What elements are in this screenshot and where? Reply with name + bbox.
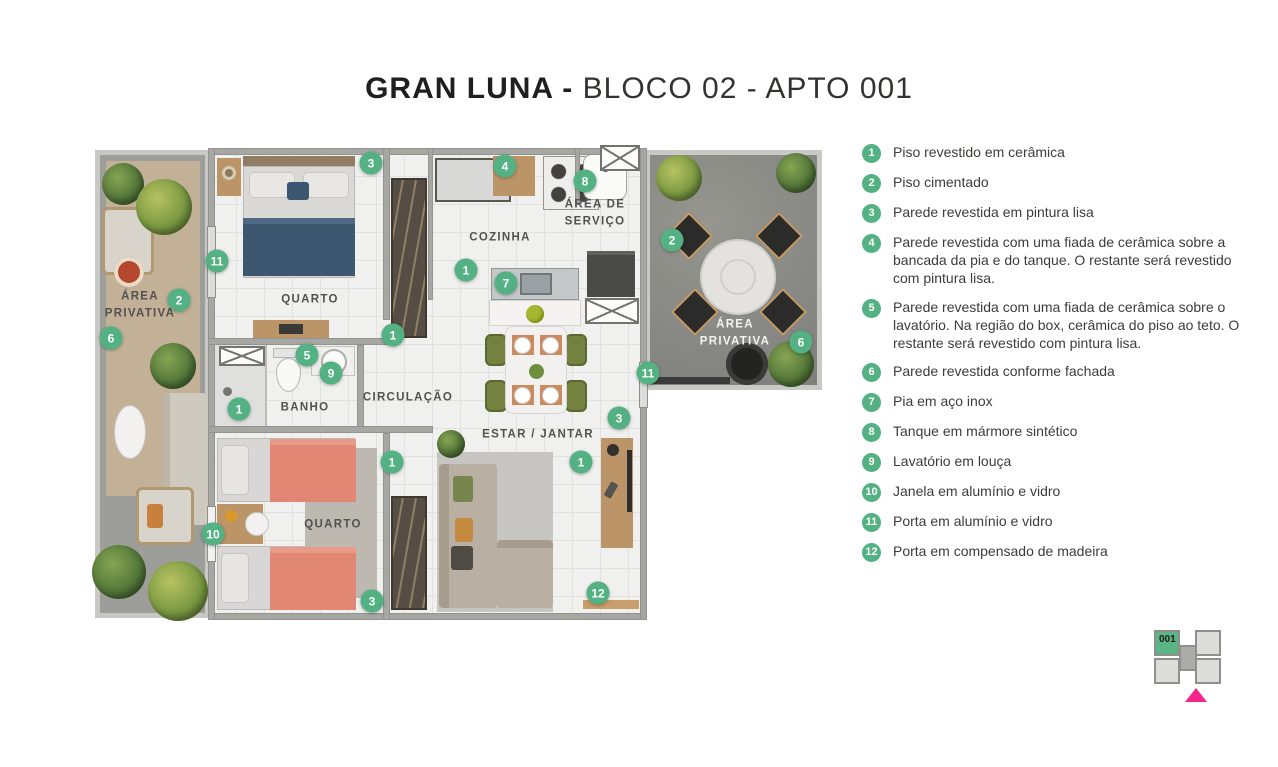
tv-desk bbox=[601, 438, 633, 548]
right-private-area bbox=[645, 150, 822, 390]
plan-marker-2: 2 bbox=[661, 229, 684, 252]
plan-marker-2: 2 bbox=[168, 289, 191, 312]
keyplan: 001 bbox=[1154, 630, 1222, 704]
dresser bbox=[253, 320, 329, 338]
room-label: ÁREA PRIVATIVA bbox=[700, 316, 770, 349]
title-brand: GRAN LUNA - bbox=[365, 72, 573, 105]
legend-item-7: 7Pia em aço inox bbox=[862, 392, 1244, 412]
armchair bbox=[136, 487, 194, 545]
legend-text: Janela em alumínio e vidro bbox=[893, 482, 1060, 500]
wall bbox=[428, 148, 433, 300]
dining-table bbox=[505, 326, 567, 414]
plan-marker-7: 7 bbox=[495, 272, 518, 295]
lamp bbox=[222, 166, 236, 180]
legend-item-9: 9Lavatório em louça bbox=[862, 452, 1244, 472]
shower-drain bbox=[223, 387, 232, 396]
legend-item-3: 3Parede revestida em pintura lisa bbox=[862, 203, 1244, 223]
plan-marker-6: 6 bbox=[790, 331, 813, 354]
round-table bbox=[702, 241, 774, 313]
washer-space bbox=[585, 298, 639, 324]
plant bbox=[148, 561, 208, 621]
plan-marker-3: 3 bbox=[608, 407, 631, 430]
legend-text: Parede revestida com uma fiada de cerâmi… bbox=[893, 233, 1243, 288]
dining-chair bbox=[565, 334, 587, 366]
legend-text: Porta em alumínio e vidro bbox=[893, 512, 1053, 530]
room-label: ESTAR / JANTAR bbox=[482, 427, 594, 444]
legend-number-badge: 7 bbox=[862, 393, 881, 412]
legend-number-badge: 10 bbox=[862, 483, 881, 502]
sliding-door bbox=[652, 377, 730, 384]
legend-item-11: 11Porta em alumínio e vidro bbox=[862, 512, 1244, 532]
table-ring bbox=[720, 259, 756, 295]
laptop bbox=[279, 324, 303, 334]
window-icon bbox=[600, 145, 640, 171]
double-bed bbox=[243, 156, 355, 278]
salmon-blanket bbox=[270, 439, 356, 502]
single-bed bbox=[217, 546, 355, 610]
salmon-blanket bbox=[270, 547, 356, 610]
plan-marker-1: 1 bbox=[381, 451, 404, 474]
legend-number-badge: 4 bbox=[862, 234, 881, 253]
pillow bbox=[221, 445, 249, 495]
plate bbox=[542, 337, 559, 354]
room-label: QUARTO bbox=[304, 517, 361, 534]
plan-marker-8: 8 bbox=[574, 170, 597, 193]
centerpiece bbox=[529, 364, 544, 379]
plate bbox=[542, 387, 559, 404]
plan-marker-11: 11 bbox=[206, 250, 229, 273]
sofa-pillow bbox=[451, 546, 473, 570]
page-title: GRAN LUNA - BLOCO 02 - APTO 001 bbox=[0, 74, 1278, 104]
plan-marker-1: 1 bbox=[228, 398, 251, 421]
pillow bbox=[303, 172, 349, 198]
plan-marker-9: 9 bbox=[320, 362, 343, 385]
legend-number-badge: 5 bbox=[862, 299, 881, 318]
legend-item-8: 8Tanque em mármore sintético bbox=[862, 422, 1244, 442]
plan-marker-6: 6 bbox=[100, 327, 123, 350]
appliance bbox=[587, 251, 635, 297]
floor-plan: ÁREA PRIVATIVAQUARTOCOZINHAÁREA DE SERVI… bbox=[95, 148, 822, 620]
pillow bbox=[221, 553, 249, 603]
left-private-area bbox=[95, 150, 210, 618]
dining-chair bbox=[565, 380, 587, 412]
food-tray bbox=[114, 257, 144, 287]
keyplan-unit bbox=[1195, 658, 1221, 684]
legend-item-10: 10Janela em alumínio e vidro bbox=[862, 482, 1244, 502]
single-bed bbox=[217, 438, 355, 502]
keyplan-unit bbox=[1195, 630, 1221, 656]
plan-marker-1: 1 bbox=[382, 324, 405, 347]
sink-basin bbox=[520, 273, 552, 295]
legend-text: Parede revestida conforme fachada bbox=[893, 362, 1115, 380]
room-label: BANHO bbox=[281, 400, 330, 417]
speaker bbox=[607, 444, 619, 456]
tv-screen bbox=[627, 450, 632, 512]
plan-marker-10: 10 bbox=[202, 523, 225, 546]
legend-number-badge: 11 bbox=[862, 513, 881, 532]
desk-chair bbox=[245, 512, 269, 536]
remote bbox=[604, 481, 619, 499]
plant bbox=[136, 179, 192, 235]
legend-number-badge: 9 bbox=[862, 453, 881, 472]
plan-marker-4: 4 bbox=[494, 155, 517, 178]
title-unit: BLOCO 02 - APTO 001 bbox=[583, 72, 913, 105]
dining-chair bbox=[485, 380, 507, 412]
legend-text: Piso cimentado bbox=[893, 173, 989, 191]
plant bbox=[437, 430, 465, 458]
sofa-pillow bbox=[453, 476, 473, 502]
legend-text: Parede revestida com uma fiada de cerâmi… bbox=[893, 298, 1243, 353]
plan-marker-3: 3 bbox=[361, 590, 384, 613]
room-label: COZINHA bbox=[469, 230, 531, 247]
plate bbox=[514, 337, 531, 354]
keyplan-north-arrow bbox=[1185, 688, 1207, 702]
legend-number-badge: 8 bbox=[862, 423, 881, 442]
wall bbox=[357, 345, 364, 430]
wardrobe bbox=[391, 178, 427, 338]
room-label: CIRCULAÇÃO bbox=[363, 390, 453, 407]
orange-pillow bbox=[147, 504, 163, 528]
legend-text: Lavatório em louça bbox=[893, 452, 1011, 470]
chaise bbox=[497, 540, 553, 608]
legend-item-1: 1Piso revestido em cerâmica bbox=[862, 143, 1244, 163]
washer-space bbox=[219, 346, 265, 366]
legend-text: Pia em aço inox bbox=[893, 392, 993, 410]
legend-text: Porta em compensado de madeira bbox=[893, 542, 1108, 560]
fruit-bowl bbox=[526, 305, 544, 323]
plan-marker-1: 1 bbox=[455, 259, 478, 282]
room-label: ÁREA PRIVATIVA bbox=[105, 288, 175, 321]
wall bbox=[208, 613, 647, 620]
legend-number-badge: 6 bbox=[862, 363, 881, 382]
legend-number-badge: 12 bbox=[862, 543, 881, 562]
legend: 1Piso revestido em cerâmica2Piso cimenta… bbox=[862, 143, 1244, 562]
legend-text: Piso revestido em cerâmica bbox=[893, 143, 1065, 161]
plate bbox=[514, 387, 531, 404]
wall bbox=[208, 338, 390, 345]
wardrobe bbox=[391, 496, 427, 610]
sofa-pillow bbox=[455, 518, 473, 542]
legend-item-5: 5Parede revestida com uma fiada de cerâm… bbox=[862, 298, 1244, 353]
navy-blanket bbox=[243, 218, 355, 276]
plant bbox=[656, 155, 702, 201]
plan-marker-1: 1 bbox=[570, 451, 593, 474]
legend-number-badge: 2 bbox=[862, 174, 881, 193]
plant bbox=[150, 343, 196, 389]
desk-lamp bbox=[225, 510, 237, 522]
legend-item-2: 2Piso cimentado bbox=[862, 173, 1244, 193]
sofa bbox=[439, 464, 497, 608]
plant bbox=[92, 545, 146, 599]
legend-text: Tanque em mármore sintético bbox=[893, 422, 1077, 440]
dining-chair bbox=[485, 334, 507, 366]
legend-number-badge: 1 bbox=[862, 144, 881, 163]
desk bbox=[217, 504, 263, 544]
island-counter bbox=[489, 300, 581, 326]
legend-item-6: 6Parede revestida conforme fachada bbox=[862, 362, 1244, 382]
plan-marker-5: 5 bbox=[296, 344, 319, 367]
plan-marker-12: 12 bbox=[587, 582, 610, 605]
plan-marker-3: 3 bbox=[360, 152, 383, 175]
keyplan-unit bbox=[1154, 658, 1180, 684]
wall bbox=[208, 426, 433, 433]
oval-coffee-table bbox=[114, 405, 146, 459]
nightstand bbox=[217, 158, 241, 196]
room-label: QUARTO bbox=[281, 292, 338, 309]
legend-item-12: 12Porta em compensado de madeira bbox=[862, 542, 1244, 562]
room-label: ÁREA DE SERVIÇO bbox=[565, 196, 626, 229]
cushion bbox=[287, 182, 309, 200]
plan-marker-11: 11 bbox=[637, 362, 660, 385]
plant bbox=[776, 153, 816, 193]
legend-item-4: 4Parede revestida com uma fiada de cerâm… bbox=[862, 233, 1244, 288]
wall bbox=[383, 148, 390, 320]
legend-number-badge: 3 bbox=[862, 204, 881, 223]
keyplan-unit-highlighted: 001 bbox=[1154, 630, 1180, 656]
legend-text: Parede revestida em pintura lisa bbox=[893, 203, 1094, 221]
